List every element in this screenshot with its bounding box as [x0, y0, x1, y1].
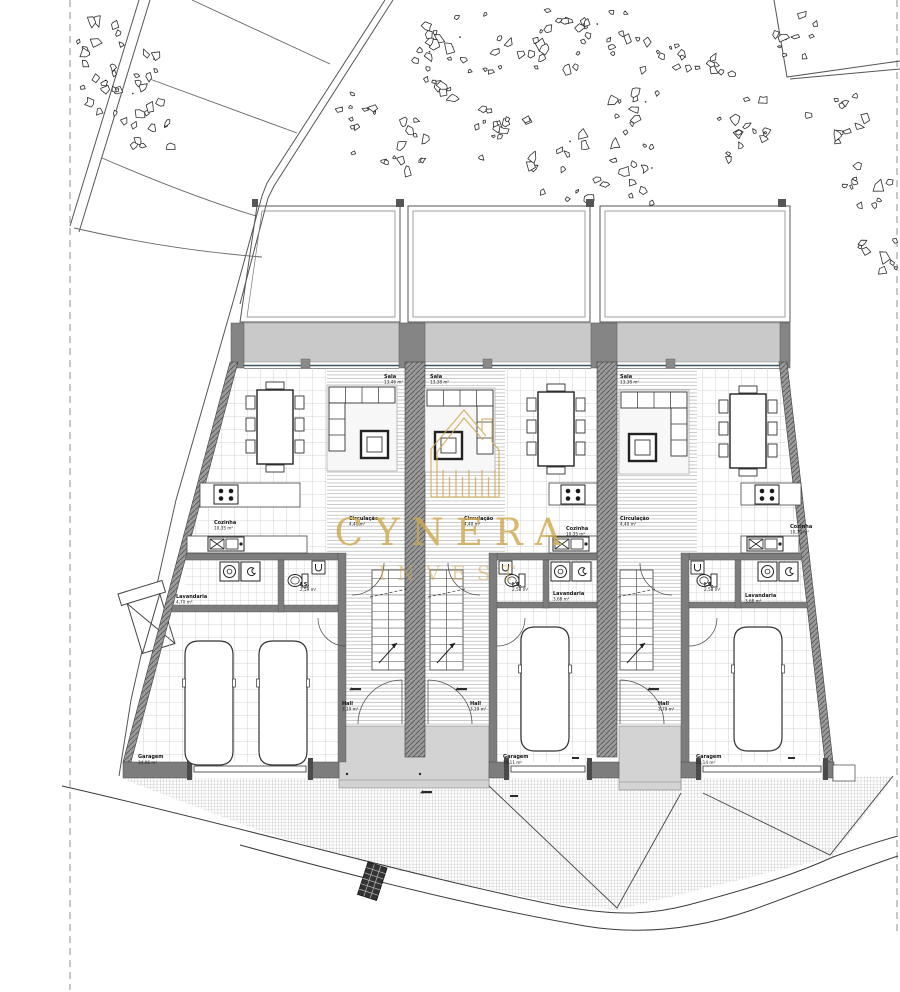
neighbor-plot-corner [774, 0, 900, 79]
leaf [90, 39, 102, 48]
leaf [582, 140, 590, 149]
leaf [669, 46, 671, 49]
leaf [611, 52, 615, 56]
leaf [624, 34, 632, 45]
window-mullion [483, 359, 492, 368]
leaf [517, 51, 525, 59]
watermark-sub-text: INVEST [378, 561, 525, 585]
leaf [351, 151, 356, 155]
tree-foliage [77, 9, 900, 274]
leaf [114, 110, 118, 116]
room-area-is-1: 2,59 m² [300, 587, 317, 592]
leaf [406, 126, 414, 135]
leaf [852, 93, 858, 98]
leaf [886, 179, 893, 185]
leaf [631, 88, 640, 98]
garden-plot-2 [408, 206, 590, 322]
leaf [146, 73, 152, 83]
leaf [861, 113, 870, 124]
window-mullion [666, 359, 675, 368]
leaf [80, 47, 90, 57]
leaf [850, 185, 854, 190]
leaf [576, 189, 579, 193]
leaf [675, 44, 680, 48]
leaf [539, 54, 546, 62]
kitchen-sink-3 [747, 537, 783, 551]
leaf [760, 136, 769, 143]
leaf [857, 202, 863, 209]
leaf [623, 130, 628, 135]
leaf [134, 74, 140, 78]
room-area-garagem-3: 20,14 m² [696, 760, 715, 765]
stove-1 [214, 485, 238, 504]
leaf [585, 32, 591, 39]
leaf [640, 66, 646, 74]
garage-car-3 [732, 627, 785, 751]
leaf [393, 156, 397, 159]
leaf [85, 97, 94, 107]
garden-plots [240, 199, 790, 322]
leaf [629, 179, 636, 186]
sofa-set-3 [619, 390, 689, 474]
room-area-cozinha-1: 10,35 m² [214, 526, 233, 531]
garden-plot-3-inner [605, 211, 785, 317]
leaf [791, 35, 800, 39]
leaf [544, 25, 552, 33]
leaf [609, 11, 614, 15]
kitchen-sink-1 [208, 537, 244, 551]
room-area-garagem-1: 34,06 m² [138, 760, 157, 765]
leaf [579, 129, 588, 140]
leaf [101, 80, 108, 86]
leaf [610, 158, 617, 163]
leaf [362, 108, 369, 111]
leaf [685, 65, 691, 72]
garden-plot-3 [600, 206, 790, 322]
stair-flight-3 [618, 570, 655, 670]
garden-plot-1 [240, 206, 400, 322]
leaf [777, 46, 781, 48]
floor-plan-canvas: Sala 13,46 m² Sala 13,38 m² Sala 13,38 m… [0, 0, 900, 992]
leaf [726, 152, 731, 156]
leaf [499, 126, 509, 133]
leaf [615, 114, 620, 118]
leaf [880, 252, 891, 264]
leaf-dot [459, 36, 461, 38]
leaf [80, 85, 85, 89]
leaf [116, 30, 121, 37]
leaf [672, 64, 681, 70]
garage-car-2 [519, 627, 572, 751]
leaf [695, 66, 700, 69]
leaf [608, 95, 618, 105]
leaf [112, 20, 119, 29]
leaf [758, 97, 767, 104]
leaf [631, 161, 637, 168]
leaf [593, 177, 601, 183]
leaf-dot [596, 23, 598, 25]
leaf [498, 134, 503, 139]
leaf [421, 158, 426, 163]
room-area-is-2: 2,58 m² [512, 587, 529, 592]
leaf [753, 129, 756, 134]
leaf [350, 92, 355, 96]
room-area-sala-2: 13,38 m² [430, 380, 449, 385]
leaf [644, 37, 652, 47]
leaf [540, 29, 543, 33]
leaf [424, 76, 429, 82]
leaf [843, 129, 851, 135]
leaf [576, 52, 580, 56]
leaf [97, 108, 104, 115]
stove-2 [561, 485, 585, 504]
leaf-dot [132, 93, 134, 95]
field-parcel-lines [74, 0, 330, 257]
leaf [468, 69, 472, 72]
sofa-set-2 [425, 388, 495, 472]
leaf [658, 53, 664, 60]
leaf [600, 182, 610, 188]
leaf [504, 38, 512, 47]
leaf [135, 110, 145, 118]
leaf [405, 166, 412, 177]
leaf [834, 99, 838, 102]
leaf [479, 155, 484, 160]
room-area-hall-2: 3,19 m² [470, 707, 487, 712]
leaf [894, 267, 898, 270]
leaf [354, 124, 359, 131]
leaf [92, 74, 100, 83]
leaf [497, 36, 502, 41]
leaf-dot [645, 101, 647, 103]
window-mullion [301, 359, 310, 368]
stair-flight-2 [428, 570, 465, 670]
leaf [728, 71, 736, 77]
room-area-hall-1: 3,19 m² [342, 707, 359, 712]
garage-door-2 [511, 766, 585, 772]
leaf [853, 162, 862, 170]
leaf [681, 55, 685, 60]
leaf [890, 260, 894, 266]
leaf [618, 100, 621, 104]
leaf [611, 138, 620, 149]
leaf [488, 70, 494, 75]
leaf [573, 64, 579, 71]
leaf [805, 112, 812, 118]
leaf [630, 122, 634, 127]
leaf [426, 67, 430, 72]
room-area-cozinha-3: 10,70 m² [790, 530, 809, 535]
leaf [397, 156, 405, 165]
leaf-dot [429, 51, 431, 53]
leaf [726, 156, 732, 163]
leaf [349, 117, 354, 121]
leaf [619, 166, 630, 176]
terrace-band [231, 323, 790, 368]
leaf [862, 247, 871, 255]
leaf [119, 42, 124, 48]
leaf [608, 44, 616, 49]
leaf [563, 64, 571, 75]
leaf [656, 50, 659, 54]
leaf [412, 57, 419, 63]
leaf [528, 50, 535, 58]
leaf [534, 66, 538, 69]
leaf [384, 160, 389, 165]
leaf [121, 118, 127, 126]
leaf [798, 11, 807, 19]
leaf [446, 94, 459, 101]
sofa-set-1 [327, 385, 397, 471]
leaf [439, 89, 447, 96]
driveway [62, 776, 898, 930]
room-area-hall-3: 3,79 m² [658, 707, 675, 712]
room-area-lavandaria-2: 3,68 m² [553, 597, 570, 602]
garage-car-1a [183, 641, 236, 765]
room-area-is-3: 2,58 m² [704, 587, 721, 592]
leaf [802, 54, 807, 60]
leaf [505, 117, 509, 122]
leaf [400, 117, 408, 127]
leaf [877, 198, 882, 202]
leaf [491, 135, 495, 138]
leaf [629, 193, 634, 198]
east-side-step [833, 765, 855, 781]
party-wall-1 [405, 362, 425, 757]
leaf [565, 197, 570, 202]
garden-plot-2-inner [413, 211, 585, 317]
garage-door-3 [703, 766, 821, 772]
leaf [710, 53, 716, 61]
room-area-lavandaria-3: 3,68 m² [745, 599, 762, 604]
leaf [77, 39, 81, 44]
leaf [110, 64, 116, 72]
leaf [739, 142, 744, 149]
room-area-circulacao-3: 4,40 m² [620, 522, 637, 527]
room-area-sala-3: 13,38 m² [620, 380, 639, 385]
leaf [143, 49, 149, 58]
leaf [581, 39, 586, 44]
leaf [782, 54, 787, 57]
garage-door-1 [194, 766, 306, 772]
leaf-dot [651, 167, 653, 169]
leaf [872, 202, 877, 208]
leaf [855, 123, 864, 129]
leaf [414, 118, 420, 123]
room-area-sala-1: 13,46 m² [384, 380, 403, 385]
leaf [349, 105, 353, 108]
leaf-dot [569, 141, 571, 143]
leaf [879, 266, 887, 274]
leaf [842, 184, 847, 188]
leaf [154, 69, 158, 73]
party-wall-2 [597, 362, 617, 757]
leaf [445, 43, 455, 54]
leaf [744, 97, 751, 101]
leaf [641, 165, 648, 173]
leaf [639, 186, 647, 194]
leaf [624, 11, 628, 15]
leaf [564, 151, 570, 158]
solar-grate [357, 862, 387, 901]
garage-car-1b [257, 641, 310, 765]
leaf [424, 53, 432, 62]
leaf [607, 37, 611, 42]
leaf [636, 37, 640, 41]
leaf [484, 13, 487, 17]
leaf [335, 107, 342, 112]
leaf [743, 123, 751, 129]
leaf [498, 65, 502, 69]
leaf [873, 179, 884, 191]
leaf [112, 86, 116, 92]
leaf [655, 91, 659, 97]
leaf [813, 21, 818, 27]
basin-3 [691, 561, 704, 574]
leaf [454, 16, 459, 20]
basin-1 [312, 561, 325, 574]
leaf [131, 121, 137, 129]
leaf [650, 200, 654, 205]
leaf [101, 85, 110, 94]
leaf [730, 114, 740, 125]
leaf [486, 109, 492, 113]
leaf [413, 133, 417, 137]
leaf [368, 105, 378, 112]
leaf [460, 57, 467, 63]
leaf [447, 57, 451, 60]
leaf [809, 34, 814, 38]
stove-3 [755, 485, 779, 504]
leaf [858, 240, 867, 246]
garden-plot-1-inner [247, 211, 395, 317]
leaf [397, 141, 407, 150]
leaf [556, 147, 562, 154]
leaf [156, 99, 165, 107]
leaf [422, 134, 429, 144]
leaf [778, 34, 789, 42]
leaf [417, 47, 423, 53]
leaf [82, 60, 89, 67]
leaf [166, 143, 175, 150]
leaf [629, 107, 639, 113]
leaf [893, 239, 898, 244]
leaf [717, 117, 721, 121]
leaf [483, 120, 485, 123]
leaf [483, 68, 487, 72]
leaf [643, 144, 647, 148]
leaf [432, 80, 437, 83]
leaf [350, 125, 354, 129]
room-area-lavandaria-1: 4,70 m² [176, 600, 193, 605]
leaf [475, 124, 480, 131]
leaf [540, 189, 545, 196]
leaf [649, 144, 654, 149]
leaf [706, 61, 715, 68]
leaf [421, 22, 431, 31]
room-area-garagem-2: 19,11 m² [503, 760, 522, 765]
leaf [619, 31, 625, 37]
leaf [490, 49, 499, 56]
watermark-brand-text: CYNERA [335, 511, 574, 554]
leaf [151, 52, 160, 61]
leaf [718, 70, 724, 76]
leaf [148, 124, 156, 132]
leaf [544, 9, 551, 13]
leaf [433, 30, 437, 34]
leaf [522, 116, 530, 123]
leaf [561, 166, 566, 172]
